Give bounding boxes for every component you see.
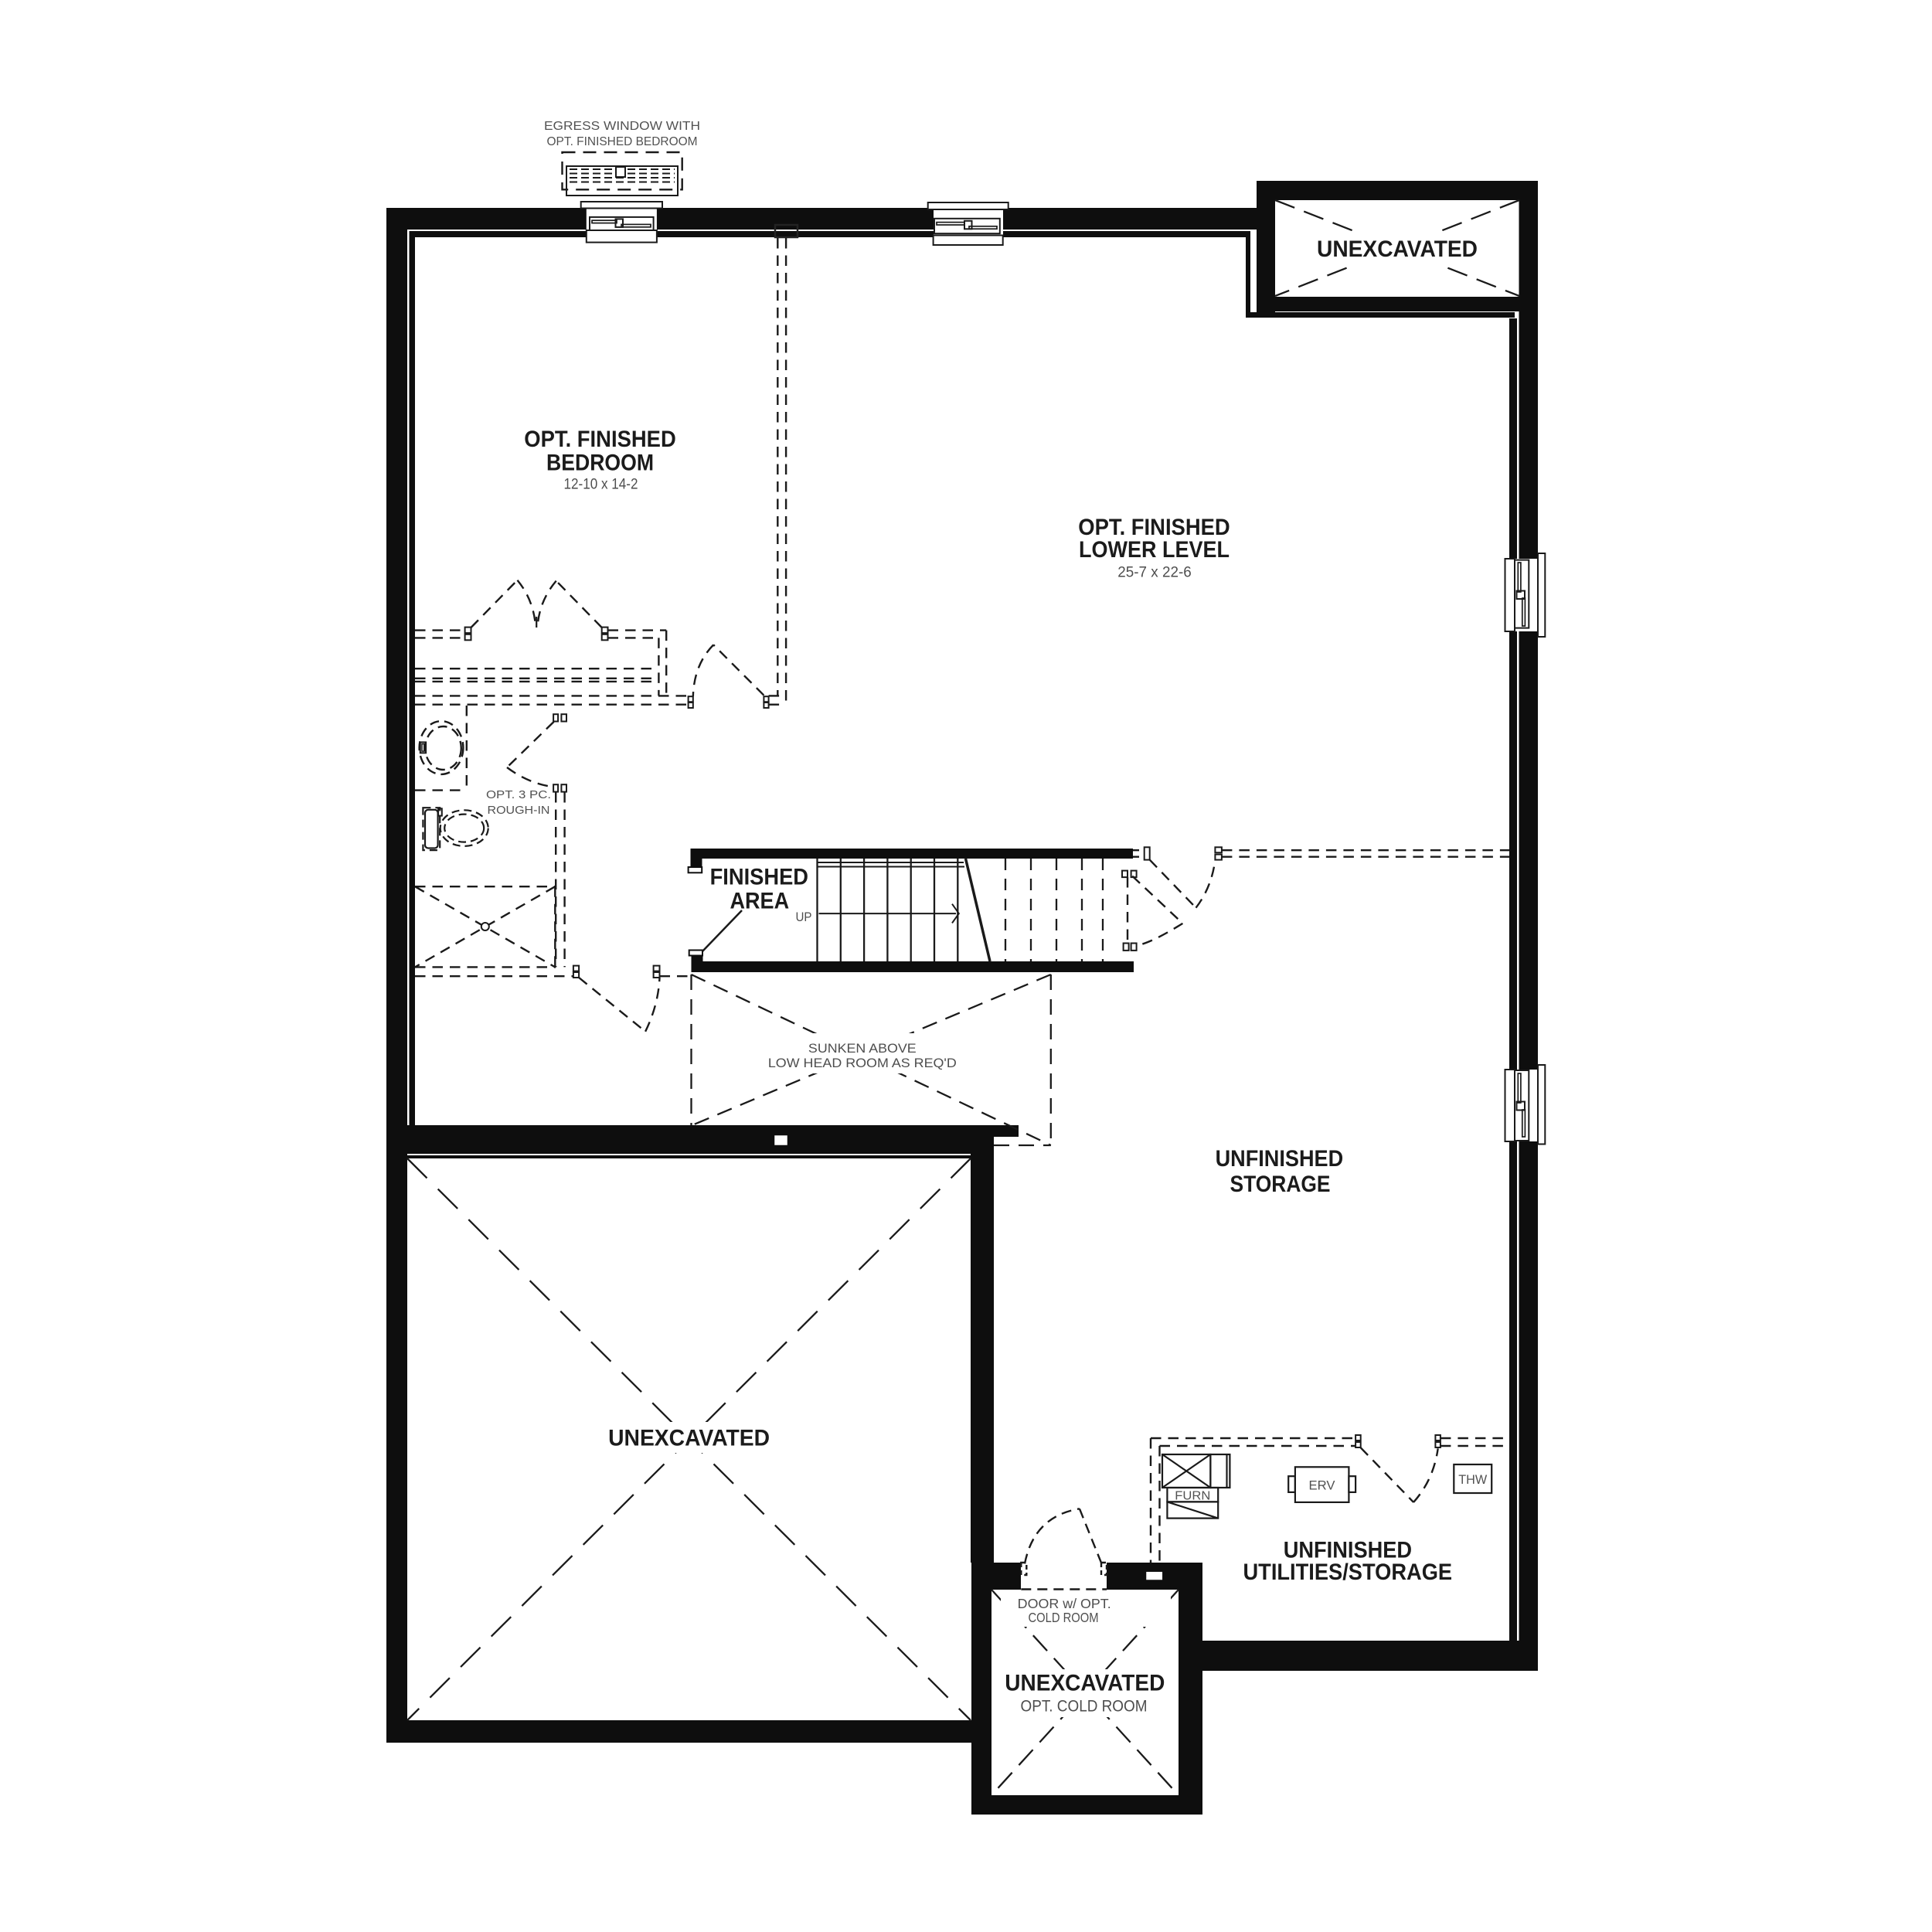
- svg-text:EGRESS WINDOW WITH: EGRESS WINDOW WITH: [544, 120, 700, 133]
- svg-text:OPT. COLD ROOM: OPT. COLD ROOM: [1021, 1698, 1148, 1716]
- svg-text:UNFINISHED: UNFINISHED: [1216, 1146, 1344, 1172]
- svg-text:OPT. FINISHED: OPT. FINISHED: [524, 427, 676, 452]
- svg-text:UNEXCAVATED: UNEXCAVATED: [1005, 1671, 1165, 1696]
- svg-text:COLD ROOM: COLD ROOM: [1029, 1610, 1099, 1625]
- svg-text:LOW HEAD ROOM AS REQ'D: LOW HEAD ROOM AS REQ'D: [768, 1056, 957, 1070]
- svg-text:OPT. 3 PC.: OPT. 3 PC.: [486, 789, 551, 801]
- svg-text:FURN: FURN: [1175, 1490, 1210, 1503]
- svg-text:ROUGH-IN: ROUGH-IN: [488, 804, 550, 817]
- svg-text:FINISHED: FINISHED: [710, 865, 808, 890]
- svg-text:BEDROOM: BEDROOM: [546, 450, 654, 475]
- svg-text:UNEXCAVATED: UNEXCAVATED: [608, 1426, 770, 1451]
- svg-text:UTILITIES/STORAGE: UTILITIES/STORAGE: [1243, 1560, 1453, 1585]
- svg-text:SUNKEN ABOVE: SUNKEN ABOVE: [808, 1041, 917, 1056]
- svg-text:AREA: AREA: [730, 889, 790, 914]
- svg-text:UP: UP: [796, 910, 812, 924]
- svg-text:25-7 x 22-6: 25-7 x 22-6: [1117, 563, 1192, 580]
- svg-text:DOOR w/ OPT.: DOOR w/ OPT.: [1018, 1596, 1111, 1611]
- svg-text:STORAGE: STORAGE: [1230, 1172, 1331, 1197]
- svg-text:OPT. FINISHED BEDROOM: OPT. FINISHED BEDROOM: [547, 135, 698, 148]
- svg-text:LOWER LEVEL: LOWER LEVEL: [1079, 537, 1230, 563]
- svg-text:UNEXCAVATED: UNEXCAVATED: [1317, 236, 1478, 262]
- svg-text:THW: THW: [1458, 1473, 1487, 1487]
- svg-text:ERV: ERV: [1309, 1479, 1335, 1493]
- svg-text:12-10 x 14-2: 12-10 x 14-2: [564, 475, 638, 492]
